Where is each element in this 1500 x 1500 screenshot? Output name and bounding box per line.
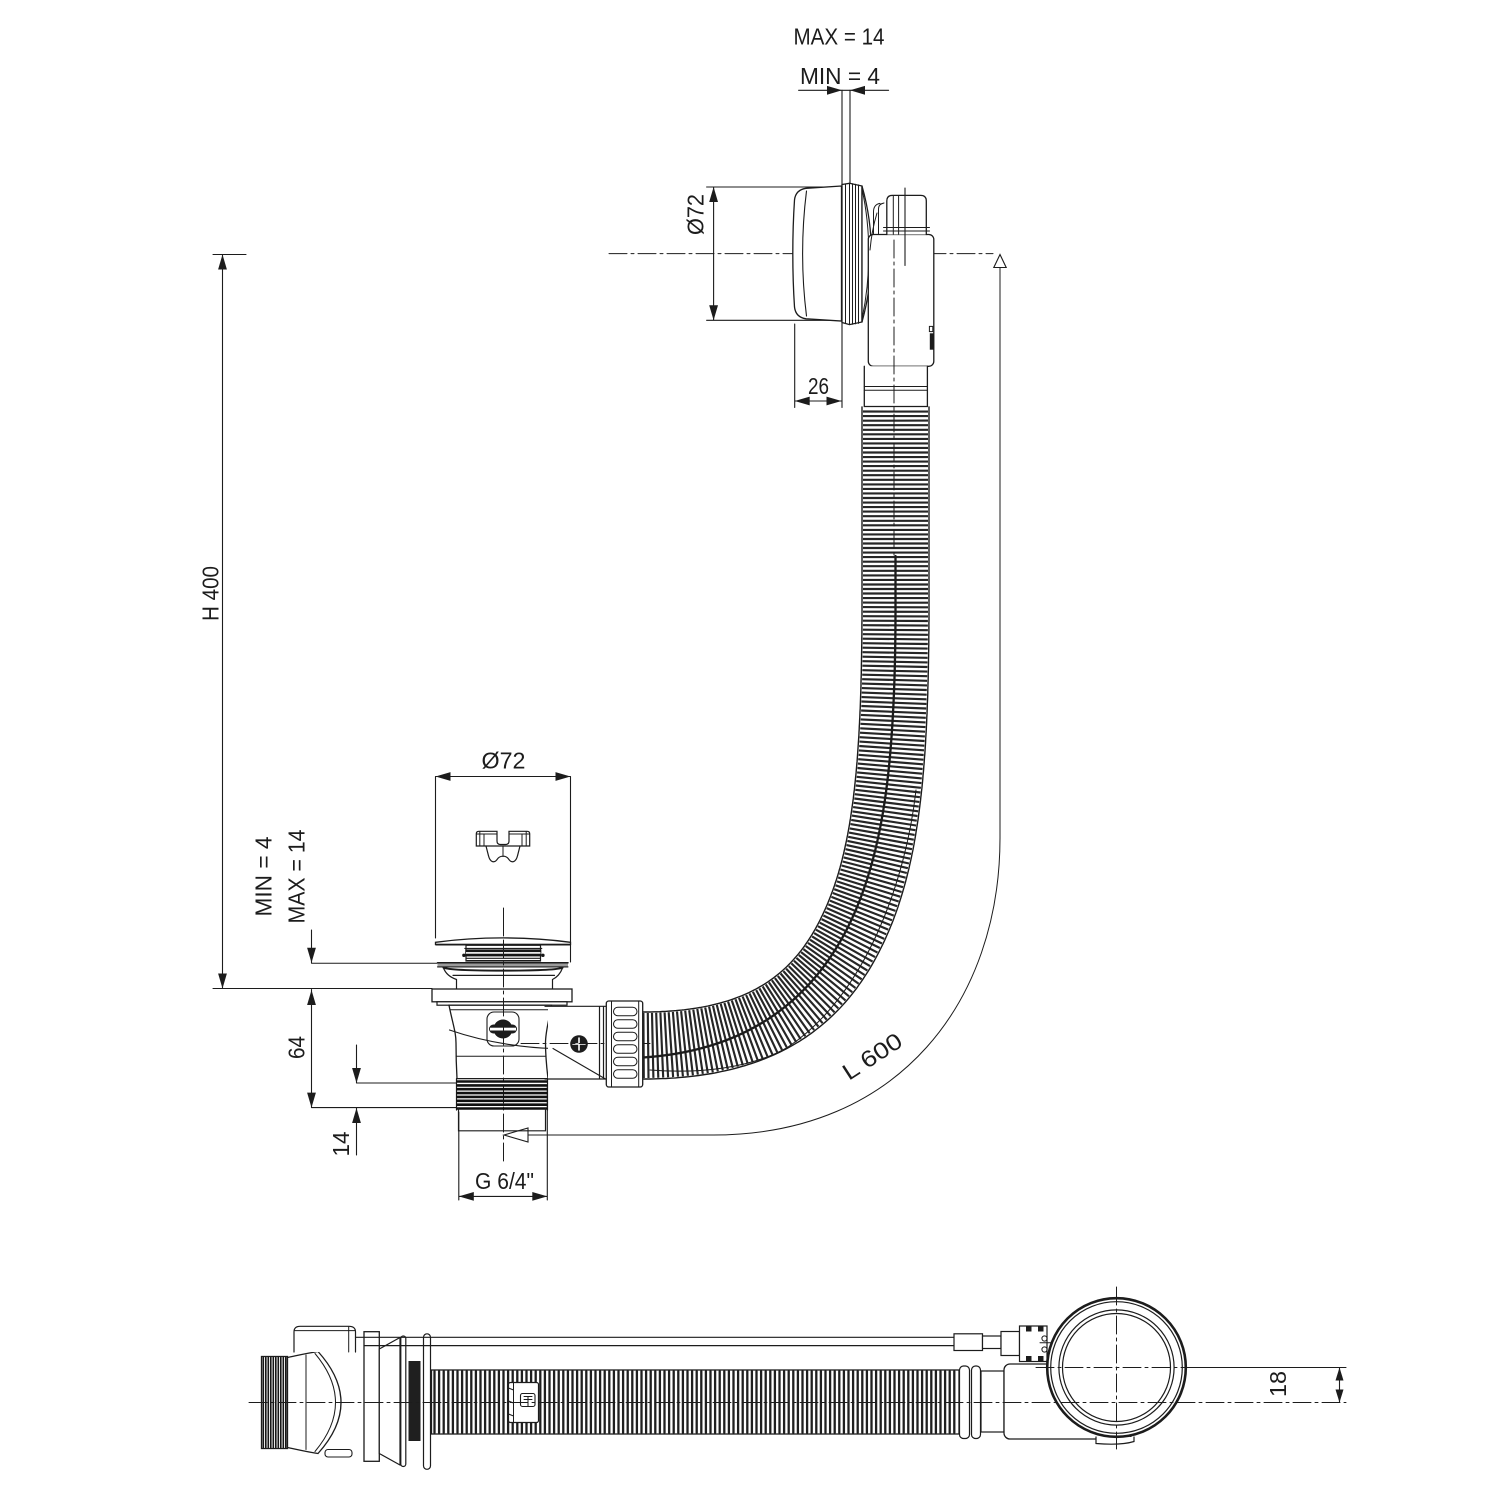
svg-text:H 400: H 400 bbox=[198, 566, 224, 621]
svg-text:64: 64 bbox=[284, 1036, 310, 1059]
svg-text:G 6/4": G 6/4" bbox=[475, 1168, 534, 1194]
svg-text:14: 14 bbox=[328, 1131, 354, 1156]
svg-text:MAX = 14: MAX = 14 bbox=[794, 24, 885, 50]
svg-text:18: 18 bbox=[1265, 1371, 1291, 1397]
svg-text:Ø72: Ø72 bbox=[683, 194, 709, 235]
svg-text:MIN = 4: MIN = 4 bbox=[800, 63, 880, 89]
svg-text:MIN = 4: MIN = 4 bbox=[251, 836, 277, 916]
svg-text:26: 26 bbox=[808, 373, 829, 399]
svg-text:Ø72: Ø72 bbox=[482, 748, 526, 774]
svg-text:MAX = 14: MAX = 14 bbox=[284, 829, 310, 923]
